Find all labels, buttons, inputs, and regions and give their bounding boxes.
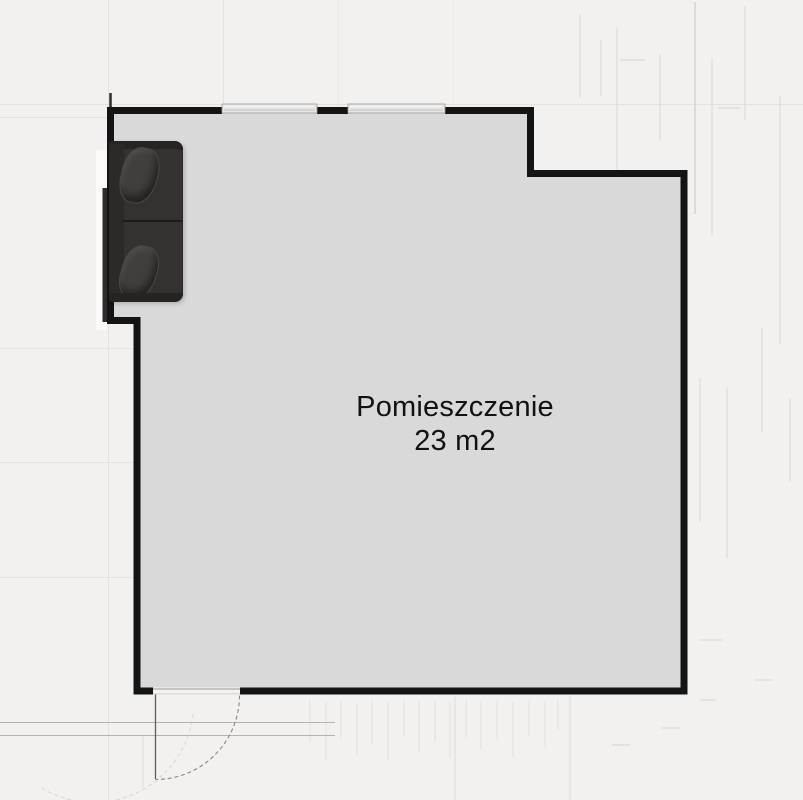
room-label: Pomieszczenie 23 m2: [280, 390, 630, 458]
background-texture-bottom: [143, 696, 570, 800]
radiator: [103, 188, 108, 322]
sofa: [109, 141, 183, 302]
door: [153, 688, 240, 780]
sofa-cushion-seam: [122, 220, 182, 222]
room-name: Pomieszczenie: [280, 390, 630, 424]
door-swing-arc: [156, 696, 240, 780]
window-2: [348, 104, 445, 113]
window-1: [222, 104, 317, 113]
floorplan: Pomieszczenie 23 m2: [0, 0, 803, 800]
room-area: 23 m2: [280, 424, 630, 458]
sofa-armrest-bottom: [109, 293, 183, 302]
background-door-arc: [40, 714, 193, 800]
background-double-lines: [0, 723, 335, 736]
